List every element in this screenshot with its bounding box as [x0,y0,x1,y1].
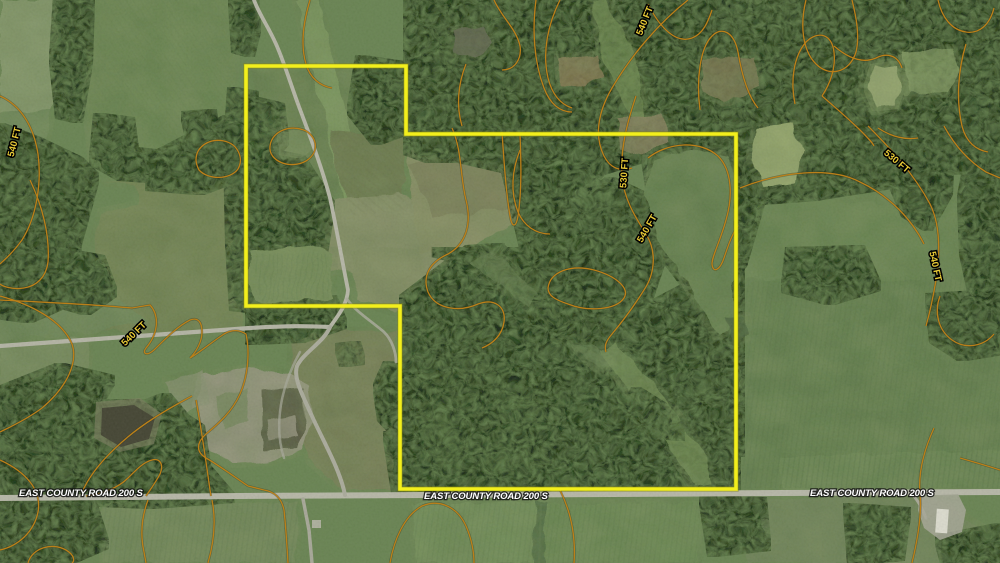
svg-text:EAST COUNTY ROAD 200 S: EAST COUNTY ROAD 200 S [19,488,144,499]
svg-text:530 FT: 530 FT [618,157,631,188]
svg-text:EAST COUNTY ROAD 200 S: EAST COUNTY ROAD 200 S [810,488,935,499]
svg-text:EAST COUNTY ROAD 200 S: EAST COUNTY ROAD 200 S [424,491,549,502]
